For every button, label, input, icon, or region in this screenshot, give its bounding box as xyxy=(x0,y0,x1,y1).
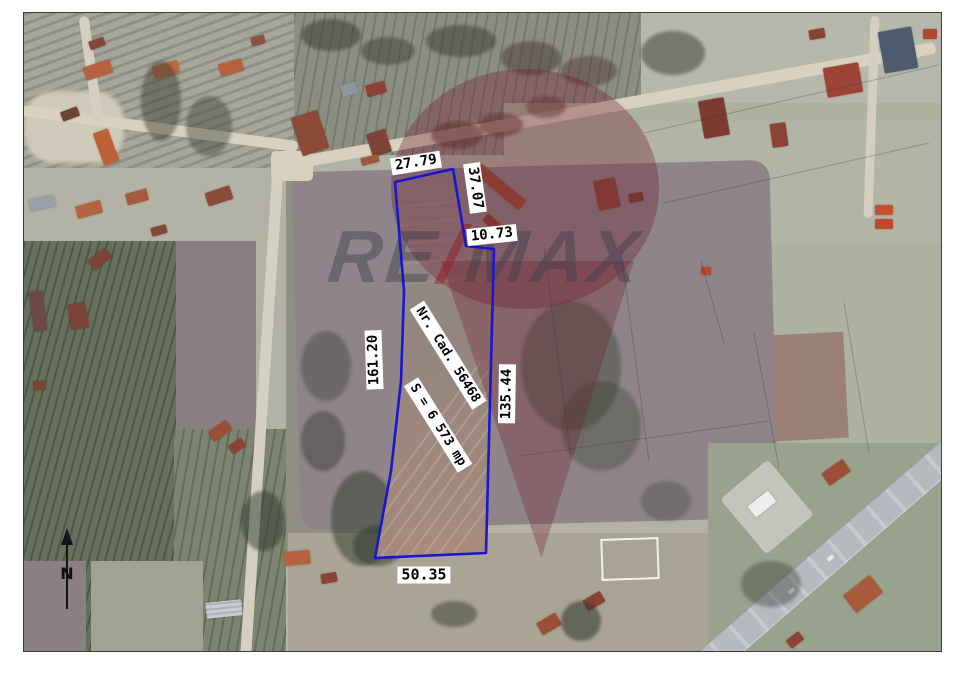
length-label-bottom: 50.35 xyxy=(397,567,450,584)
cadastral-plan-page: RE/MAX 27.79 37.07 10.73 161.20 135.44 N… xyxy=(0,0,960,674)
length-label-right: 135.44 xyxy=(498,365,516,424)
north-label: N xyxy=(54,564,80,583)
parcel-outline-layer xyxy=(24,13,941,651)
satellite-map: RE/MAX 27.79 37.07 10.73 161.20 135.44 N… xyxy=(23,12,942,652)
north-arrow-icon: N xyxy=(54,528,80,620)
length-label-left: 161.20 xyxy=(364,330,383,389)
